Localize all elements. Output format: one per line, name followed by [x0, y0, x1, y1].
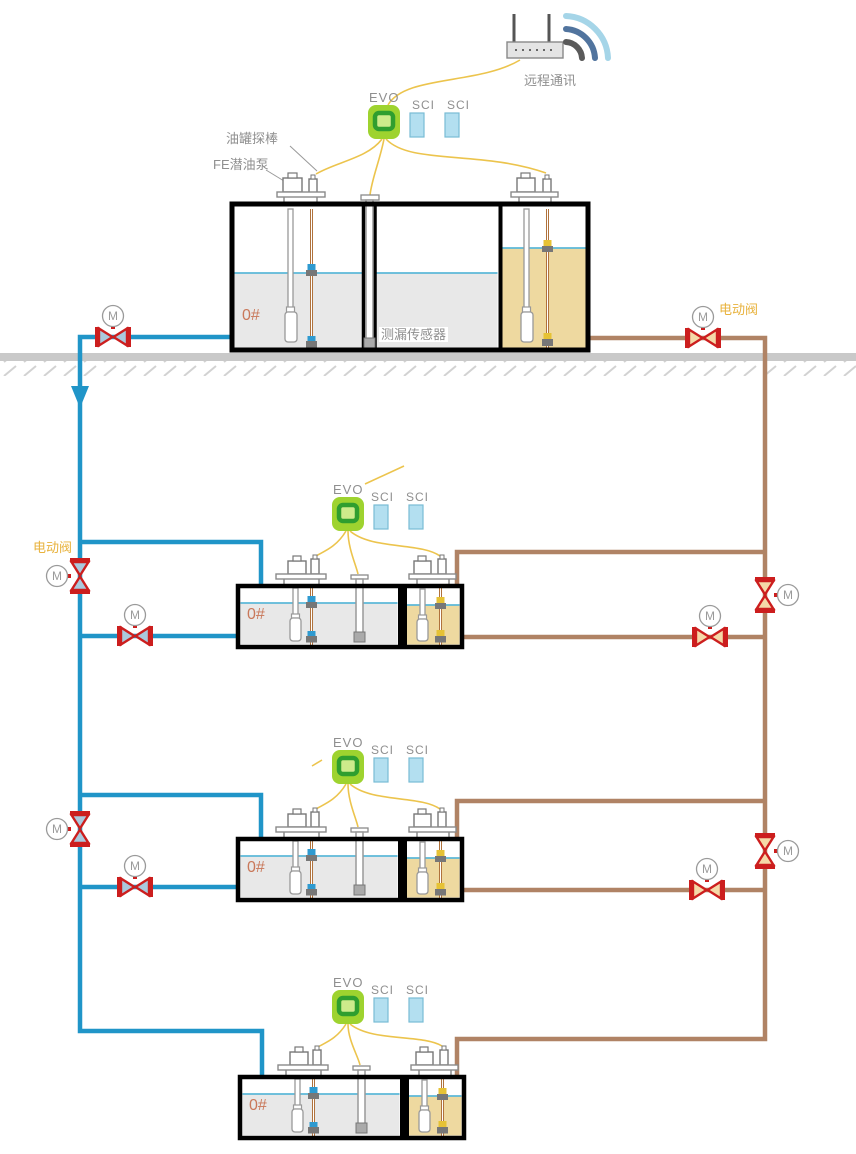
tank-row3	[238, 808, 462, 900]
motor-label: M	[693, 308, 713, 326]
sci-label-row1b: SCI	[447, 99, 470, 111]
evo-label-row2: EVO	[333, 483, 363, 496]
leak-sensor-label: 测漏传感器	[379, 327, 448, 342]
electric-valve-label-row2: 电动阀	[33, 541, 72, 554]
main-tank	[232, 173, 588, 350]
sci-label-row4a: SCI	[371, 984, 394, 996]
tank-monitoring-diagram: 远程通讯 EVO SCI SCI 油罐探棒 FE潜油泵 测漏传感器 0# M M…	[0, 0, 856, 1154]
flow-arrow-icon	[71, 386, 89, 408]
grade-label-row2: 0#	[247, 607, 265, 623]
sci-label-row4b: SCI	[406, 984, 429, 996]
sci-label-row1a: SCI	[412, 99, 435, 111]
motor-label: M	[47, 567, 67, 585]
evo-label-row3: EVO	[333, 736, 363, 749]
tank-row4	[240, 1046, 464, 1138]
grade-label-row4: 0#	[249, 1098, 267, 1114]
tank-row2	[238, 555, 462, 647]
sci-label-row3b: SCI	[406, 744, 429, 756]
evo-label-row1: EVO	[369, 91, 399, 104]
motor-label: M	[778, 586, 798, 604]
sci-label-row2b: SCI	[406, 491, 429, 503]
motor-label: M	[125, 857, 145, 875]
fe-pump-label: FE潜油泵	[213, 158, 269, 171]
system-diagram-canvas	[0, 0, 856, 1154]
grade-label-row3: 0#	[247, 860, 265, 876]
router-icon	[507, 14, 563, 58]
ground-line	[0, 353, 856, 376]
tank-probe-label: 油罐探棒	[226, 132, 278, 145]
motor-label: M	[778, 842, 798, 860]
motor-label: M	[697, 860, 717, 878]
pipe-blue	[80, 337, 262, 1089]
electric-valve-label-row1: 电动阀	[719, 303, 758, 316]
motor-label: M	[125, 606, 145, 624]
sci-label-row2a: SCI	[371, 491, 394, 503]
motor-label: M	[103, 307, 123, 325]
remote-comm-label: 远程通讯	[524, 74, 576, 87]
wifi-signal-icon	[566, 16, 608, 58]
sci-label-row3a: SCI	[371, 744, 394, 756]
pipe-brown	[457, 338, 765, 1089]
grade-label-row1: 0#	[242, 308, 260, 324]
motor-label: M	[47, 820, 67, 838]
motor-label: M	[700, 607, 720, 625]
evo-label-row4: EVO	[333, 976, 363, 989]
